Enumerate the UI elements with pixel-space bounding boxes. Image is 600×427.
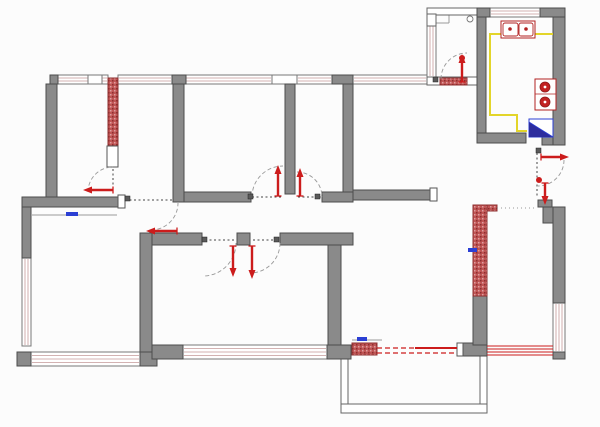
corridor-door-knob <box>536 177 542 183</box>
window-frame-rect <box>185 75 272 84</box>
new-wall-red <box>487 205 497 211</box>
wall <box>332 75 353 84</box>
blue-marker <box>66 212 78 216</box>
wall <box>540 8 565 17</box>
door-jamb <box>430 188 437 201</box>
wall <box>140 233 152 352</box>
stove <box>535 79 556 110</box>
stove-burner-center <box>544 101 547 104</box>
wall <box>322 192 353 202</box>
door-hinge-symbol <box>274 237 279 242</box>
window <box>427 25 436 77</box>
window <box>297 75 332 84</box>
wall <box>22 207 31 258</box>
door-hinge-symbol <box>433 77 438 82</box>
thin-wall <box>341 352 348 410</box>
sink-tap <box>524 27 528 31</box>
window <box>185 75 272 84</box>
balcony-arrow-cap <box>459 55 465 61</box>
door-swing-arc <box>151 203 178 230</box>
wall <box>477 8 490 17</box>
room-d-door-arrow <box>297 168 304 177</box>
window-frame-rect <box>353 75 427 84</box>
wall <box>172 75 186 84</box>
wall <box>22 197 120 207</box>
window-frame-rect <box>22 258 31 346</box>
window-frame-rect <box>118 75 172 84</box>
arrow-head <box>230 268 237 277</box>
arrow-head <box>83 187 92 194</box>
bedroom-a-door-arrow <box>83 187 92 194</box>
wall <box>17 352 31 366</box>
window-frame-rect <box>297 75 332 84</box>
door-jamb <box>457 343 463 356</box>
door-hinge-symbol <box>125 196 130 201</box>
sink-tap <box>508 27 512 31</box>
arrow-head <box>560 154 569 161</box>
wall <box>237 233 250 245</box>
window-frame <box>88 75 102 84</box>
plan-layers <box>17 8 569 413</box>
wall <box>553 207 565 303</box>
wall <box>477 17 486 133</box>
room-f-door-arrow <box>230 268 237 277</box>
window-frame-rect <box>427 25 436 77</box>
wall <box>50 75 58 84</box>
wall <box>473 296 487 345</box>
wall <box>327 345 351 359</box>
floor-plan-canvas <box>0 0 600 427</box>
door-hinge-symbol <box>248 194 253 199</box>
door-hinge-symbol <box>536 148 541 153</box>
door-jamb <box>118 195 125 208</box>
floor-plan <box>0 0 600 427</box>
blue-marker <box>468 248 477 252</box>
new-wall-red <box>108 78 118 147</box>
stove-burner-center <box>544 86 547 89</box>
door-swing-arc <box>538 160 564 186</box>
kitchen-sink <box>501 21 535 38</box>
wall <box>152 233 202 245</box>
door-hinge-symbol <box>202 237 207 242</box>
window-frame-rect <box>490 8 540 17</box>
door-hinge-symbol <box>315 194 320 199</box>
door-jamb <box>107 146 118 167</box>
window <box>490 8 540 17</box>
wall <box>173 84 184 202</box>
arrow-head <box>249 270 256 279</box>
balcony-symbol-circle <box>467 16 473 22</box>
arrow-head <box>297 168 304 177</box>
thin-wall <box>427 14 436 26</box>
new-wall-red <box>352 343 377 355</box>
wall <box>280 233 353 245</box>
wall <box>353 190 430 200</box>
wall <box>46 84 57 198</box>
thin-wall <box>480 352 487 410</box>
wall <box>553 352 565 359</box>
wall <box>285 84 295 194</box>
wall <box>477 133 526 143</box>
door-swing-arc <box>250 243 280 273</box>
window <box>353 75 427 84</box>
room-g-door-arrow <box>249 270 256 279</box>
window <box>118 75 172 84</box>
blue-marker <box>357 337 367 341</box>
window <box>22 258 31 346</box>
wall <box>184 192 251 202</box>
thin-wall <box>341 404 487 413</box>
wall <box>328 245 341 352</box>
wall <box>343 84 353 192</box>
window-frame <box>272 75 297 84</box>
corridor-east-arrow <box>560 154 569 161</box>
wall <box>152 345 183 359</box>
